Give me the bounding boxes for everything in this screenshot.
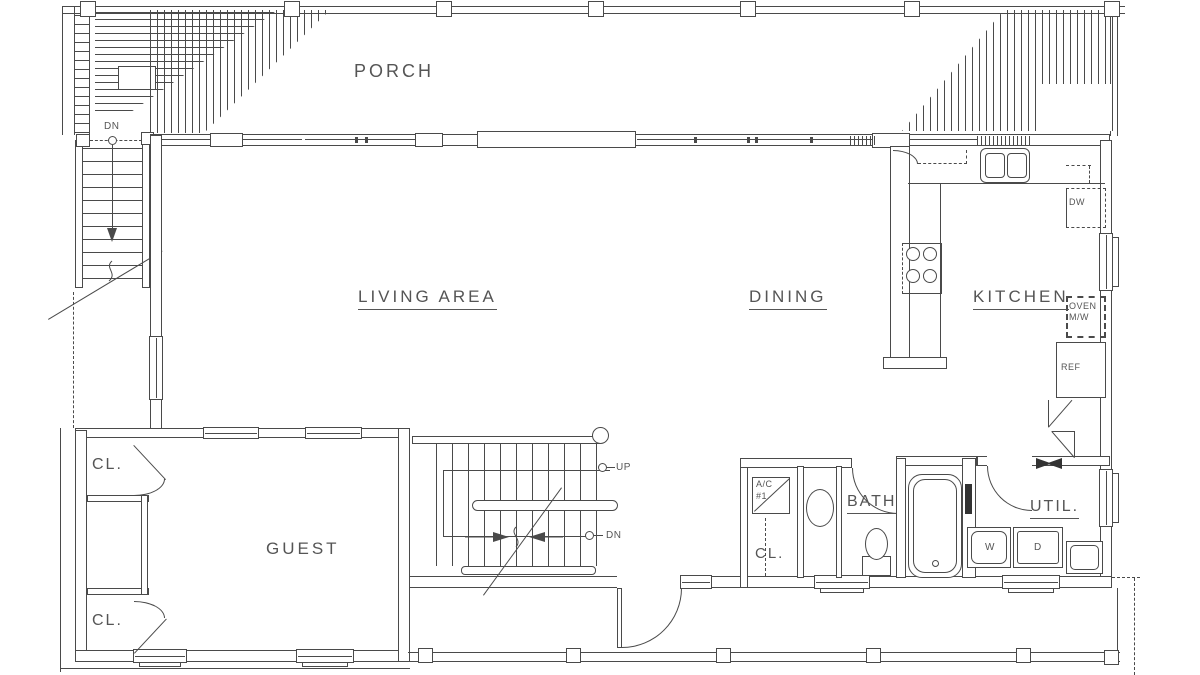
closet-divider-wall	[87, 588, 149, 595]
top-wall-mullion	[694, 137, 697, 143]
top-wall-mullion	[755, 137, 758, 143]
guest-bottom-wall	[75, 650, 410, 662]
washer-label: W	[985, 542, 995, 553]
guest-bottom-window-sill	[139, 662, 181, 667]
utility-door-arc	[987, 466, 1032, 511]
future-stair-dashed	[1134, 578, 1135, 675]
stove-burner	[923, 269, 937, 283]
porch-post	[436, 1, 452, 17]
porch-post	[866, 648, 881, 663]
ac-label-line1: A/C	[756, 480, 773, 490]
exterior-stair-break-squiggle	[100, 260, 120, 282]
top-wall-window-hatch	[977, 136, 1033, 145]
top-wall-pier	[210, 133, 243, 147]
stair-bottom-rail	[461, 566, 596, 575]
hall-closet-label: CL.	[755, 545, 784, 562]
bath-label: BATH	[847, 493, 896, 514]
porch-post	[80, 1, 96, 17]
porch-right-edge-inner	[1117, 6, 1118, 136]
stair-opening-line	[443, 470, 610, 471]
dining-label: DINING	[749, 288, 827, 310]
stair-newel-post	[592, 427, 609, 444]
future-stair-dashed	[1112, 577, 1140, 578]
guest-bottom-window	[296, 649, 354, 663]
utility-sink-inner	[1070, 545, 1099, 570]
oven-label-line2: M/W	[1069, 313, 1089, 323]
porch-left-edge	[62, 6, 63, 135]
stove-burner	[906, 269, 920, 283]
guest-label: GUEST	[266, 540, 340, 559]
bottom-porch-rim-inner	[408, 652, 1120, 653]
corner-pantry-edge	[1074, 431, 1075, 457]
kitchen-entry-arc	[893, 150, 918, 164]
upper-cabinet-dashed	[966, 150, 967, 164]
top-wall-mullion	[355, 137, 358, 143]
guest-upper-closet-label: CL.	[92, 456, 123, 474]
stove-burner	[923, 247, 937, 261]
hall-bath-wall	[740, 458, 748, 588]
dishwasher-label: DW	[1069, 198, 1085, 208]
kitchen-peninsula-cap	[883, 357, 947, 369]
refrigerator-label: REF	[1061, 363, 1081, 373]
dryer-label: D	[1034, 542, 1042, 553]
kitchen-sink-bowl	[985, 153, 1005, 178]
top-wall-pier	[415, 133, 443, 147]
exterior-stair-dn-label: DN	[104, 121, 119, 132]
corner-pantry-diagonal	[1051, 431, 1075, 458]
closet-vanity-wall	[797, 466, 804, 578]
top-wall-window-hatch	[850, 136, 877, 145]
exterior-stair-marker	[108, 136, 117, 145]
bottom-window	[680, 575, 712, 589]
stair-up-marker	[598, 463, 607, 472]
stair-opening-line	[443, 470, 444, 536]
exterior-stair-arrowhead	[107, 228, 117, 242]
porch-deck-hatch-left-vertical	[150, 10, 330, 133]
upper-cabinet-dashed	[918, 163, 967, 164]
top-wall-mullion	[810, 137, 813, 143]
deck-edge-bottom-left	[60, 668, 410, 669]
porch-label: PORCH	[354, 62, 434, 82]
ac-label-line2: #1	[756, 492, 767, 502]
tub-left-wall	[896, 458, 906, 578]
stair-up-leader	[607, 467, 615, 468]
dishwasher-edge	[1066, 188, 1067, 228]
bottom-window-sill	[820, 588, 864, 593]
kitchen-right-window	[1099, 233, 1113, 291]
guest-bottom-window	[133, 649, 187, 663]
closet-door-arc	[134, 479, 165, 496]
stair-up-label: UP	[616, 462, 631, 473]
floor-plan: PORCH DN	[0, 0, 1200, 675]
guest-right-wall	[398, 428, 410, 662]
bottom-porch-rim-outer	[408, 661, 1120, 662]
top-wall-glazing	[637, 139, 695, 140]
kitchen-label: KITCHEN	[973, 288, 1069, 310]
top-wall-mullion	[747, 137, 750, 143]
bathtub-inner	[913, 479, 957, 573]
kitchen-window-sill	[1112, 237, 1119, 287]
closet-divider-wall	[87, 495, 149, 502]
top-wall-glazing	[243, 139, 302, 140]
utility-window-sill	[1112, 473, 1119, 523]
porch-post	[418, 648, 433, 663]
left-deck-dashed-edge	[73, 292, 74, 428]
exterior-stair-left-rail	[75, 140, 83, 288]
living-area-label: LIVING AREA	[358, 288, 497, 310]
utility-label: UTIL.	[1030, 498, 1079, 519]
stair-dn-marker	[585, 531, 594, 540]
bottom-window	[1002, 575, 1060, 589]
closet-alcove-wall	[141, 495, 148, 595]
porch-post	[1104, 1, 1120, 17]
toilet-bowl	[865, 528, 888, 560]
stair-dn-leader	[594, 535, 603, 536]
porch-post	[284, 1, 300, 17]
deck-edge-left	[60, 428, 61, 672]
vanity-wall	[836, 466, 842, 578]
bath-sink	[806, 489, 834, 527]
top-wall-header	[477, 131, 636, 148]
porch-hatch-notch	[1038, 84, 1112, 131]
entry-door-arc	[622, 588, 682, 648]
utility-right-window	[1099, 469, 1113, 527]
kitchen-sink-bowl	[1007, 153, 1027, 178]
porch-post	[588, 1, 604, 17]
upper-cabinet-dashed	[1089, 166, 1090, 183]
stair-direction-arrows	[463, 524, 565, 550]
porch-post	[740, 1, 756, 17]
bottom-window	[814, 575, 870, 589]
top-wall-glazing	[908, 139, 977, 140]
porch-post	[1016, 648, 1031, 663]
porch-post	[904, 1, 920, 17]
porch-post	[716, 648, 731, 663]
top-wall-glazing	[697, 139, 872, 140]
oven-label-line1: OVEN	[1069, 302, 1097, 312]
stove-burner	[906, 247, 920, 261]
porch-post	[1104, 650, 1119, 665]
top-wall-glazing	[160, 139, 212, 140]
corner-pantry-edge	[1048, 400, 1049, 427]
exterior-stair-arrow-line	[112, 145, 113, 230]
bottom-window-sill	[1008, 588, 1054, 593]
porch-left-railing	[74, 6, 90, 135]
util-pocket-door-leaf	[965, 484, 972, 514]
guest-top-window	[203, 427, 259, 439]
closet-door-leaf	[133, 445, 166, 480]
kitchen-counter-edge	[908, 183, 1105, 184]
top-wall-mullion	[365, 137, 368, 143]
guest-lower-closet-label: CL.	[92, 612, 123, 630]
top-wall-glazing	[305, 139, 417, 140]
living-left-window	[149, 336, 163, 400]
upper-cabinet-dashed	[1066, 165, 1091, 166]
corner-pantry-edge	[1052, 431, 1074, 432]
corner-pantry-diagonal	[1048, 400, 1072, 428]
stair-dn-label: DN	[606, 530, 621, 541]
porch-post	[566, 648, 581, 663]
stair-top-rail	[412, 436, 600, 444]
exterior-stair-right-rail	[142, 138, 150, 288]
closet-door-arc	[134, 601, 165, 618]
guest-left-wall	[75, 430, 87, 662]
bathtub-drain	[932, 560, 939, 567]
exterior-stair-newel	[76, 134, 90, 147]
guest-top-window	[305, 427, 362, 439]
guest-bottom-window-sill	[302, 662, 348, 667]
dishwasher-box	[1066, 188, 1106, 228]
